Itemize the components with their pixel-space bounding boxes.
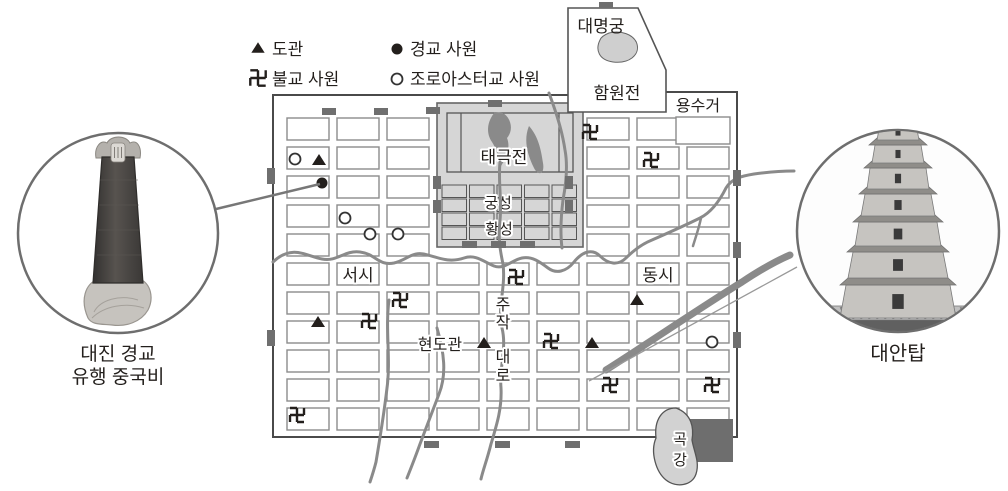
buddhist-swastika-icon bbox=[250, 70, 265, 85]
city-block bbox=[587, 408, 629, 430]
city-block bbox=[687, 263, 729, 285]
gate-marker bbox=[520, 241, 535, 248]
city-block bbox=[287, 118, 329, 140]
pagoda-window bbox=[894, 200, 901, 210]
city-block bbox=[637, 205, 679, 227]
gokgang-area bbox=[654, 408, 733, 485]
taoist-triangle-icon bbox=[251, 42, 264, 52]
city-block bbox=[387, 263, 429, 285]
zoroastrian-circle-icon bbox=[707, 337, 718, 348]
city-block bbox=[287, 205, 329, 227]
stele-caption-line2: 유행 중국비 bbox=[72, 366, 165, 388]
gate-marker bbox=[267, 330, 275, 346]
city-block bbox=[337, 408, 379, 430]
gate-marker bbox=[733, 242, 741, 258]
hamwonjeon-label: 함원전 bbox=[594, 84, 641, 103]
pagoda-window bbox=[895, 150, 900, 158]
city-block bbox=[587, 292, 629, 314]
city-block bbox=[287, 263, 329, 285]
nestorian-dot-icon bbox=[392, 44, 403, 55]
daemyeonggung-label: 대명궁 bbox=[578, 17, 625, 36]
city-block bbox=[637, 176, 679, 198]
nestorian-dot-icon bbox=[392, 44, 403, 55]
city-block bbox=[337, 292, 379, 314]
legend: 도관 경교 사원 불교 사원 조로아스터교 사원 bbox=[250, 40, 540, 89]
city-block bbox=[537, 350, 579, 372]
city-block bbox=[637, 379, 679, 401]
buddhist-swastika-icon bbox=[250, 70, 265, 85]
city-block bbox=[337, 147, 379, 169]
city-block bbox=[487, 408, 529, 430]
district-label: 로 bbox=[496, 368, 511, 385]
gate-marker bbox=[491, 241, 506, 248]
gate-marker bbox=[488, 100, 502, 107]
railing-tick bbox=[969, 307, 974, 319]
city-block bbox=[337, 176, 379, 198]
yongsugeo-area: 용수거 bbox=[676, 97, 730, 144]
gate-marker bbox=[433, 200, 441, 213]
city-block bbox=[637, 350, 679, 372]
pagoda-caption: 대안탑 bbox=[870, 342, 925, 365]
daming-palace: 대명궁 함원전 bbox=[568, 2, 666, 112]
district-label: 곡 bbox=[673, 431, 687, 448]
gate-marker bbox=[426, 107, 440, 114]
legend-label-buddhist: 불교 사원 bbox=[272, 70, 339, 89]
gate-marker bbox=[495, 441, 510, 448]
city-block bbox=[337, 379, 379, 401]
railing-tick bbox=[968, 307, 973, 319]
zoroastrian-circle-icon bbox=[290, 154, 301, 165]
district-label: 주 bbox=[496, 297, 511, 314]
city-block bbox=[437, 263, 479, 285]
city-block bbox=[587, 176, 629, 198]
railing-tick bbox=[825, 307, 830, 319]
city-block bbox=[287, 408, 329, 430]
gate-marker bbox=[433, 176, 441, 189]
city-block bbox=[437, 292, 479, 314]
zoroastrian-circle-icon bbox=[393, 229, 404, 240]
city-block bbox=[287, 292, 329, 314]
yongsugeo-label: 용수거 bbox=[676, 97, 720, 115]
city-block bbox=[637, 292, 679, 314]
gate-marker bbox=[374, 108, 388, 115]
pagoda-window bbox=[895, 174, 901, 183]
pagoda-eave bbox=[840, 278, 956, 285]
city-block bbox=[387, 118, 429, 140]
city-block bbox=[687, 147, 729, 169]
pagoda-eave bbox=[874, 117, 922, 124]
daming-pond bbox=[598, 32, 638, 62]
city-block bbox=[337, 321, 379, 343]
gate-marker bbox=[565, 176, 573, 189]
zoroastrian-circle-icon bbox=[392, 74, 403, 85]
city-block bbox=[537, 379, 579, 401]
city-block bbox=[337, 118, 379, 140]
gate-marker bbox=[267, 168, 275, 184]
city-block bbox=[387, 205, 429, 227]
pagoda-window bbox=[892, 294, 903, 309]
city-block bbox=[537, 292, 579, 314]
taoist-triangle-icon bbox=[251, 42, 264, 52]
city-block bbox=[437, 408, 479, 430]
district-label: 작 bbox=[496, 314, 511, 332]
railing-tick bbox=[824, 307, 829, 319]
city-block bbox=[587, 205, 629, 227]
taegukjeon-label: 태극전 bbox=[481, 148, 528, 167]
district-label: 서시 bbox=[342, 266, 373, 285]
district-label: 강 bbox=[673, 452, 687, 469]
city-block bbox=[687, 379, 729, 401]
city-block bbox=[537, 408, 579, 430]
city-block bbox=[387, 147, 429, 169]
zoroastrian-circle-icon bbox=[340, 213, 351, 224]
daming-gate-marker bbox=[599, 2, 613, 8]
gate-marker bbox=[565, 441, 580, 448]
legend-label-taoist: 도관 bbox=[272, 40, 303, 59]
city-block bbox=[387, 408, 429, 430]
gate-marker bbox=[322, 108, 336, 115]
pagoda-window bbox=[893, 259, 903, 271]
legend-label-nestorian: 경교 사원 bbox=[410, 40, 477, 59]
legend-label-zoroastrian: 조로아스터교 사원 bbox=[410, 70, 540, 89]
gate-marker bbox=[462, 241, 477, 248]
gate-marker bbox=[424, 441, 439, 448]
district-label: 대 bbox=[496, 348, 511, 366]
stele-caption-line1: 대진 경교 bbox=[80, 343, 155, 365]
city-block bbox=[637, 118, 679, 140]
gate-marker bbox=[565, 200, 573, 213]
zoroastrian-circle-icon bbox=[392, 74, 403, 85]
gungseong-label: 궁성 bbox=[484, 195, 512, 212]
city-block bbox=[387, 379, 429, 401]
city-block bbox=[287, 379, 329, 401]
district-label: 현도관 bbox=[418, 336, 462, 354]
nestorian-dot-icon bbox=[317, 178, 328, 189]
city-block bbox=[687, 350, 729, 372]
city-block bbox=[337, 350, 379, 372]
gate-marker bbox=[733, 332, 741, 348]
city-block bbox=[287, 350, 329, 372]
city-block bbox=[687, 205, 729, 227]
city-block bbox=[587, 263, 629, 285]
map-canvas: 도관 경교 사원 불교 사원 조로아스터교 사원 태극전 궁성 황성 bbox=[0, 0, 1008, 491]
gate-marker bbox=[733, 170, 741, 186]
city-block bbox=[587, 147, 629, 169]
pagoda-window bbox=[894, 229, 903, 240]
city-block bbox=[387, 176, 429, 198]
district-label: 동시 bbox=[642, 266, 673, 285]
city-block bbox=[587, 118, 629, 140]
zoroastrian-circle-icon bbox=[365, 229, 376, 240]
changan-map-figure: 도관 경교 사원 불교 사원 조로아스터교 사원 태극전 궁성 황성 bbox=[0, 0, 1008, 491]
city-block bbox=[587, 379, 629, 401]
